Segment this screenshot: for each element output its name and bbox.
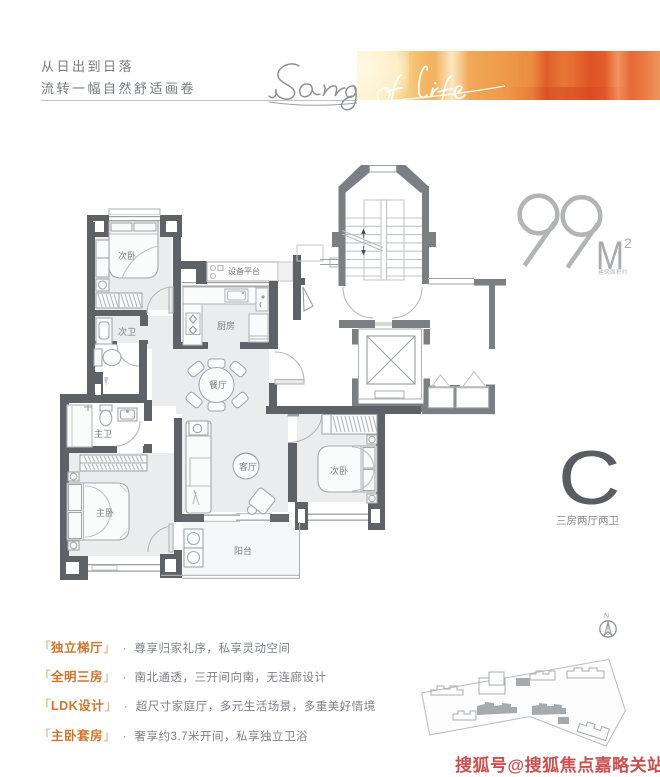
svg-text:厨房: 厨房 [217, 320, 235, 331]
svg-text:主卧: 主卧 [96, 507, 114, 518]
svg-text:2: 2 [624, 235, 632, 251]
svg-text:餐厅: 餐厅 [209, 379, 227, 390]
svg-text:次卫: 次卫 [118, 326, 136, 337]
svg-text:次卧: 次卧 [118, 250, 136, 261]
svg-text:建筑面积约: 建筑面积约 [598, 268, 628, 276]
svg-text:次卧: 次卧 [330, 465, 348, 476]
svg-text:设备平台: 设备平台 [228, 266, 260, 276]
svg-text:N: N [604, 613, 609, 620]
svg-text:阳台: 阳台 [234, 545, 252, 556]
svg-text:主卫: 主卫 [94, 428, 112, 439]
svg-text:客厅: 客厅 [239, 461, 257, 472]
